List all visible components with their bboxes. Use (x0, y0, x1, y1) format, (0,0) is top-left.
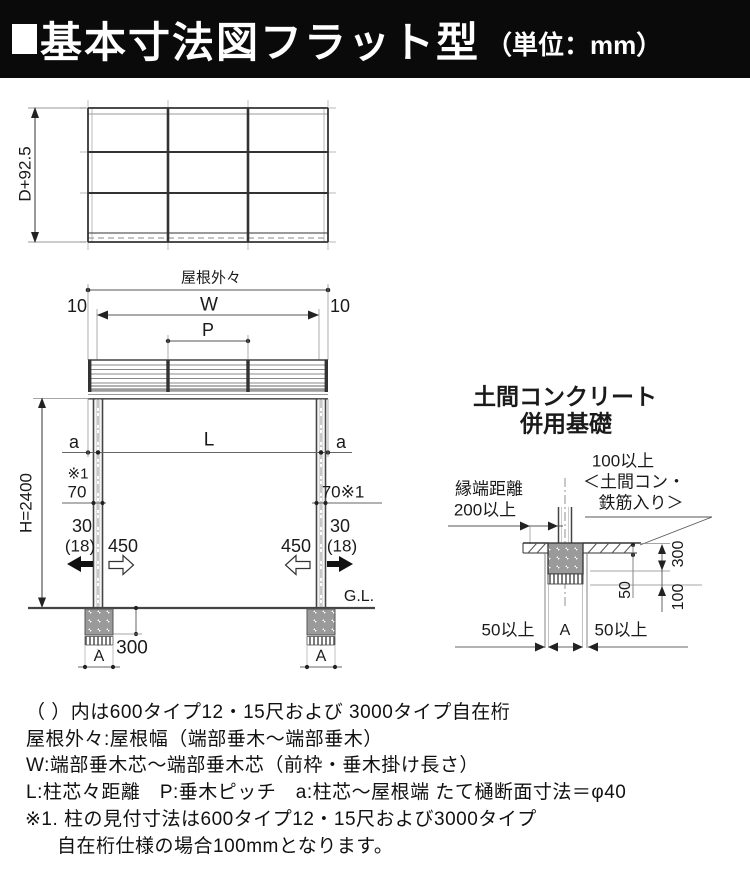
dim-l: L (204, 431, 215, 450)
dim-450-right: 450 (281, 537, 311, 555)
dim-300-detail: 300 (671, 541, 687, 568)
arrow-right-icon (548, 522, 558, 531)
dim-50min-left: 50以上 (482, 622, 535, 639)
dim-a-foot-left: A (94, 649, 105, 665)
slab-note-line3: 鉄筋入り＞ (599, 495, 684, 512)
footing-gravel (85, 637, 113, 646)
footing-gravel (307, 637, 335, 646)
page: 基本寸法図フラット型 （単位：mm） (0, 0, 750, 895)
dim-a-right: a (336, 433, 346, 451)
dim-100-detail: 100 (671, 584, 687, 611)
dim-70-right: 70※1 (322, 484, 365, 501)
dim-30-right: 30 (330, 517, 350, 535)
note-line-5: ※1. 柱の見付寸法は600タイプ12・15尺および3000タイプ (25, 810, 537, 829)
dim-300-foot: 300 (116, 639, 148, 658)
outline-arrow-left-icon (286, 556, 311, 575)
dim-50min-right: 50以上 (595, 622, 648, 639)
arrow-right-icon (520, 522, 530, 531)
arrow-left-icon (588, 643, 598, 652)
slab-note-line1: 100以上 (592, 453, 654, 470)
dim-18-left: (18) (65, 538, 95, 555)
solid-arrow-left-icon (67, 556, 93, 572)
arrow-left-icon (548, 643, 558, 652)
note-line-6: 自在桁仕様の場合100mmとなります。 (57, 837, 393, 856)
arrow-down-icon (38, 598, 46, 609)
arrow-left-icon (97, 311, 108, 320)
dim-450-left: 450 (108, 537, 138, 555)
dim-w: W (200, 296, 218, 315)
note-line-1: （ ）内は600タイプ12・15尺および 3000タイプ自在桁 (26, 703, 510, 722)
dim-10-right: 10 (330, 297, 350, 315)
note-line-2: 屋根外々:屋根幅（端部垂木〜端部垂木） (26, 730, 383, 749)
arrow-right-icon (573, 643, 583, 652)
note-ref-left: ※1 (68, 467, 89, 482)
dim-h: H=2400 (18, 473, 35, 533)
arrow-up-icon (31, 107, 39, 118)
arrow-up-icon (38, 398, 46, 409)
footing-concrete (307, 609, 335, 635)
edge-distance-line2: 200以上 (454, 502, 516, 519)
dim-10-left: 10 (67, 297, 87, 315)
arrow-right-icon (308, 311, 319, 320)
arrow-down-icon (658, 561, 666, 571)
note-line-4: L:柱芯々距離 P:垂木ピッチ a:柱芯〜屋根端 たて樋断面寸法＝φ40 (26, 783, 626, 802)
dim-a-left: a (69, 433, 79, 451)
detail-title-line1: 土間コンクリート (473, 386, 657, 409)
arrow-up-icon (658, 544, 666, 554)
ground-label: G.L. (344, 589, 374, 605)
dim-a-detail: A (560, 623, 571, 639)
arrow-down-icon (31, 232, 39, 243)
plan-view-linework (28, 100, 336, 250)
footing-concrete (85, 609, 113, 635)
dim-50-detail: 50 (618, 581, 634, 599)
slab-note-line2: ＜土間コン・ (583, 474, 685, 491)
dim-depth-label: D+92.5 (17, 146, 34, 201)
solid-arrow-right-icon (327, 556, 353, 572)
roof-overall-label: 屋根外々 (181, 271, 241, 286)
dim-a-foot-right: A (316, 649, 327, 665)
dim-30-left: 30 (72, 517, 92, 535)
footing-gravel (548, 574, 583, 584)
dim-18-right: (18) (327, 538, 357, 555)
outline-arrow-right-icon (109, 556, 134, 575)
detail-title-line2: 併用基礎 (520, 413, 612, 436)
edge-distance-line1: 縁端距離 (455, 481, 523, 498)
arrow-up-icon (658, 586, 666, 596)
dim-70-left: 70 (68, 484, 87, 501)
note-line-3: W:端部垂木芯〜端部垂木芯（前枠・垂木掛け長さ） (26, 756, 479, 775)
dim-p: P (202, 321, 214, 339)
footing-concrete (548, 543, 583, 574)
arrow-right-icon (535, 643, 545, 652)
